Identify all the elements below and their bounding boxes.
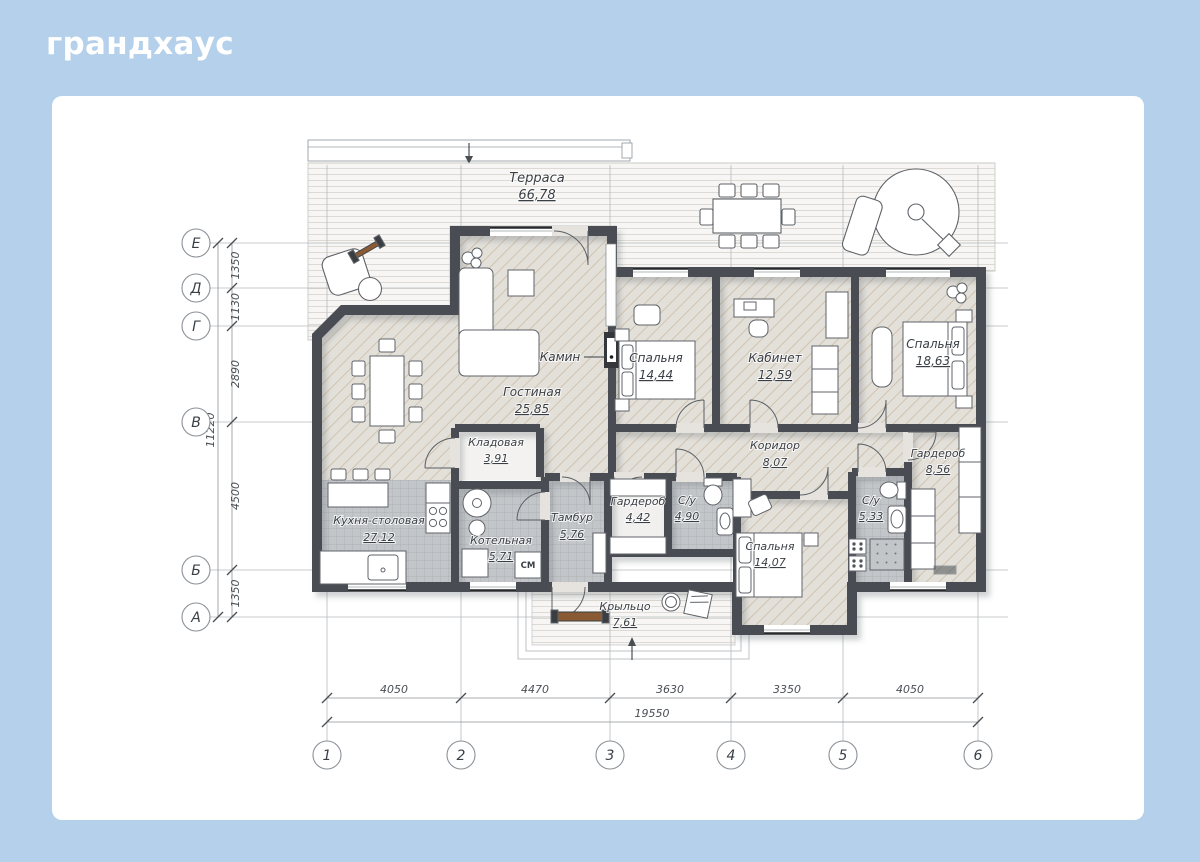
- window: [633, 267, 688, 277]
- dim-v-0: 1350: [229, 252, 242, 280]
- axis-row-2: Г: [192, 319, 201, 335]
- room-label: Кабинет: [748, 351, 802, 365]
- axis-col-3: 4: [727, 748, 736, 764]
- armchair-icon: [634, 305, 660, 325]
- room-label: Коридор: [750, 439, 800, 452]
- doormat-icon: [934, 566, 956, 574]
- brand-logo: грандхаус: [46, 26, 234, 62]
- bookcase-icon: [812, 346, 838, 414]
- axis-row-4: Б: [191, 563, 201, 579]
- room-label: С/у: [678, 494, 696, 507]
- room-area: 66,78: [518, 188, 555, 203]
- chaise-icon: [872, 327, 892, 387]
- room-area: 27,12: [363, 531, 395, 544]
- axis-col-2: 3: [606, 748, 615, 764]
- room-label: Терраса: [509, 171, 565, 186]
- washer-icon: [849, 539, 866, 554]
- dim-v-2: 2890: [229, 360, 242, 388]
- dim-h-2: 3630: [656, 683, 684, 696]
- dim-h-3: 3350: [773, 683, 801, 696]
- coffee-table-icon: [508, 270, 534, 296]
- room-label: Гардероб: [911, 447, 966, 460]
- dim-h-4: 4050: [896, 683, 924, 696]
- room-area: 3,91: [484, 452, 509, 465]
- dim-h-1: 4470: [521, 683, 549, 696]
- window: [754, 267, 800, 277]
- room-label: Котельная: [470, 534, 532, 547]
- washbasin-icon: [717, 508, 733, 535]
- window: [764, 625, 810, 635]
- axis-col-0: 1: [323, 748, 332, 764]
- room-label: Гостиная: [503, 385, 561, 399]
- room-label: Кладовая: [468, 436, 524, 449]
- flower-pot-icon: [662, 593, 680, 611]
- doormat-icon: [684, 590, 712, 618]
- window: [890, 582, 946, 592]
- dining-table-icon: [370, 356, 404, 426]
- tv-niche: [606, 244, 616, 326]
- room-label: Кухня-столовая: [333, 514, 425, 527]
- dim-h-total: 19550: [635, 707, 670, 720]
- room-area: 8,07: [763, 456, 788, 469]
- room-area: 18,63: [916, 354, 950, 368]
- axis-row-1: Д: [190, 281, 202, 297]
- desk-chair-icon: [749, 320, 768, 337]
- dryer-icon: [849, 556, 866, 571]
- room-label: Спальня: [629, 351, 682, 365]
- room-area: 5,71: [489, 550, 514, 563]
- washer-label: СМ: [521, 561, 536, 571]
- room-area: 14,44: [639, 368, 673, 382]
- boiler-icon: [463, 489, 491, 517]
- dim-h-0: 4050: [380, 683, 408, 696]
- side-table-icon: [359, 278, 382, 301]
- room-area: 14,07: [754, 556, 786, 569]
- roof-edge-bracket: [622, 143, 632, 158]
- room-area: 8,56: [926, 463, 951, 476]
- room-area: 4,42: [626, 511, 651, 524]
- toilet-icon: [880, 482, 898, 498]
- dim-v-4: 1350: [229, 580, 242, 608]
- fireplace-label: Камин: [540, 350, 581, 364]
- room-area: 25,85: [515, 402, 549, 416]
- room-label: Спальня: [746, 540, 795, 553]
- room-label: Тамбур: [551, 511, 593, 524]
- axis-row-0: Е: [192, 236, 201, 252]
- room-area: 5,76: [560, 528, 585, 541]
- axis-col-1: 2: [457, 748, 466, 764]
- axis-col-5: 6: [974, 748, 983, 764]
- axis-row-3: В: [191, 415, 201, 431]
- dining-table-outdoor: [713, 199, 781, 233]
- kitchen-island: [328, 483, 388, 507]
- floorplan-page: грандхаус: [0, 0, 1200, 862]
- room-label: Гардероб: [611, 495, 666, 508]
- kitchen-counter: [320, 551, 406, 584]
- room-area: 12,59: [758, 368, 792, 382]
- shower-floor: [870, 539, 904, 570]
- room-label: Спальня: [906, 337, 959, 351]
- room-area: 5,33: [859, 510, 884, 523]
- dim-v-3: 4500: [229, 482, 242, 510]
- room-label: С/у: [862, 494, 880, 507]
- porch-bench-icon: [556, 612, 604, 621]
- axis-row-5: А: [190, 610, 201, 626]
- window: [470, 582, 516, 592]
- stove-icon: [426, 503, 450, 533]
- axis-col-4: 5: [839, 748, 848, 764]
- floorplan-canvas: 1350 1130 2890 4500 1350 11220 4050 4470…: [0, 0, 1200, 862]
- room-area: 7,61: [613, 616, 638, 629]
- window: [886, 267, 950, 277]
- room-label: Крыльцо: [599, 600, 650, 613]
- dim-v-1: 1130: [229, 293, 242, 321]
- room-area: 4,90: [675, 510, 700, 523]
